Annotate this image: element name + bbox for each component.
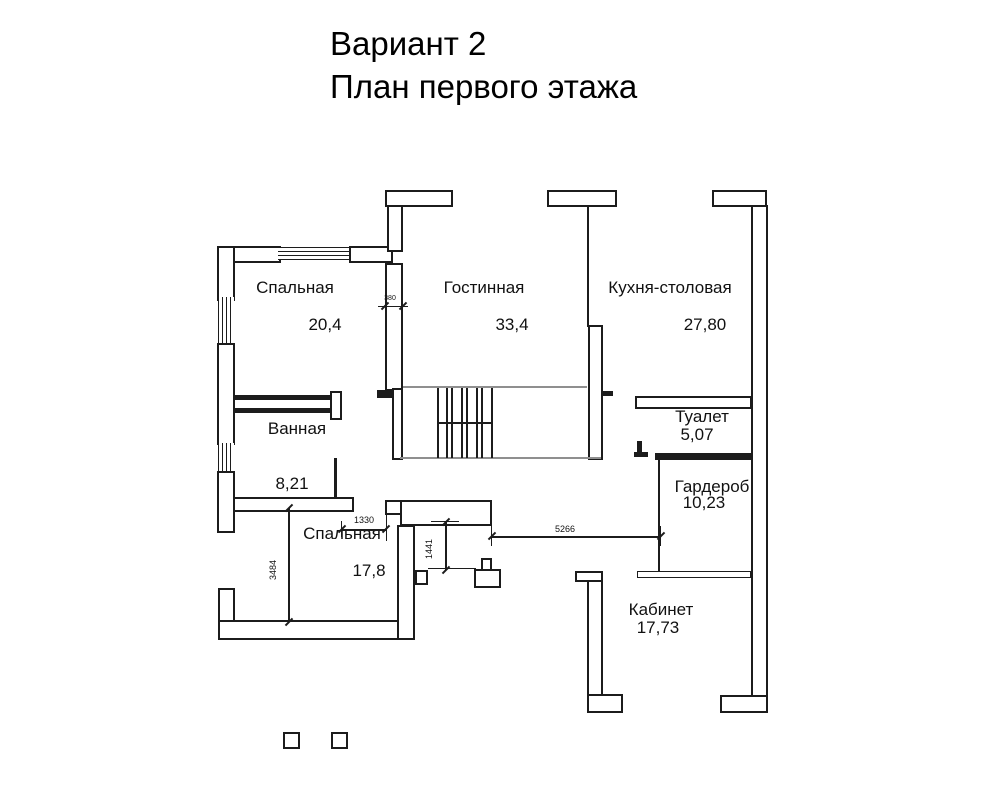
room-area-kitchen: 27,80: [635, 315, 775, 335]
cabinet-wall: [587, 694, 623, 713]
legend-square: [283, 732, 300, 749]
room-label-bedroom1: Спальная: [235, 278, 355, 298]
door-jamb: [377, 390, 392, 398]
exterior-wall: [218, 620, 415, 640]
room-label-cabinet: Кабинет: [601, 600, 721, 620]
exterior-wall: [217, 246, 235, 301]
room-area-bedroom2: 17,8: [309, 561, 429, 581]
exterior-wall: [720, 695, 768, 713]
door-jamb: [602, 391, 613, 396]
window: [218, 443, 234, 473]
window: [218, 297, 234, 345]
legend-square: [331, 732, 348, 749]
bathroom-wall: [235, 408, 331, 413]
stair-landing-line: [437, 422, 493, 424]
dimension-line: [342, 529, 387, 531]
room-label-kitchen: Кухня-столовая: [600, 278, 740, 298]
floor-edge-line: [403, 386, 587, 388]
floor-edge-line: [400, 457, 601, 459]
door-jamb: [634, 452, 648, 457]
room-area-bedroom1: 20,4: [265, 315, 385, 335]
drawing-title: Вариант 2 План первого этажа: [330, 22, 637, 108]
interior-wall: [385, 263, 403, 391]
room-area-wardrobe: 10,23: [644, 493, 764, 513]
exterior-wall: [387, 205, 403, 252]
room-area-toilet: 5,07: [637, 425, 757, 445]
dimension-line: [492, 536, 661, 538]
window: [278, 247, 351, 260]
partition-wall: [588, 325, 603, 460]
cabinet-wall: [637, 571, 751, 578]
dimension-hall-opening: 1441: [424, 530, 436, 568]
dimension-wall-thickness: 380: [378, 295, 402, 302]
title-line-variant: Вариант 2: [330, 22, 637, 65]
bathroom-wall: [235, 395, 331, 400]
partition-line: [587, 207, 589, 327]
dimension-hall-length: 5266: [540, 524, 590, 534]
room-label-bathroom: Ванная: [237, 419, 357, 439]
room-area-livingroom: 33,4: [452, 315, 572, 335]
dimension-extension: [428, 568, 476, 569]
dimension-line: [288, 508, 290, 622]
column-symbol: [474, 569, 501, 588]
floor-plan-drawing: Вариант 2 План первого этажа: [0, 0, 1000, 800]
room-label-livingroom: Гостинная: [424, 278, 544, 298]
dimension-bedroom-depth: 3484: [268, 546, 280, 594]
exterior-wall-right: [751, 205, 768, 713]
door-jamb: [330, 391, 342, 420]
toilet-wall: [655, 453, 752, 460]
stairwell-wall: [392, 388, 403, 460]
exterior-wall: [217, 343, 235, 445]
title-line-plan: План первого этажа: [330, 65, 637, 108]
dimension-bath-door: 1330: [340, 515, 388, 525]
dimension-line: [445, 522, 447, 570]
cabinet-wall: [587, 580, 603, 697]
room-label-toilet: Туалет: [642, 407, 762, 427]
exterior-wall: [547, 190, 617, 207]
room-area-cabinet: 17,73: [598, 618, 718, 638]
room-area-bathroom: 8,21: [232, 474, 352, 494]
